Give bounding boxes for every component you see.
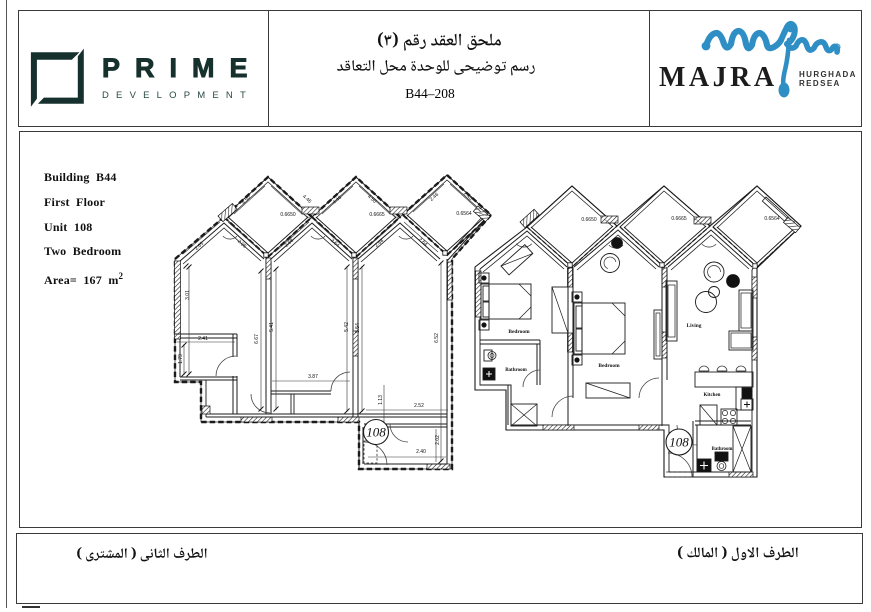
- svg-text:1.13: 1.13: [378, 395, 384, 405]
- svg-text:2.64: 2.64: [417, 237, 428, 248]
- svg-text:0.6564: 0.6564: [456, 211, 472, 217]
- svg-text:0.6650: 0.6650: [581, 217, 597, 223]
- svg-text:0.6650: 0.6650: [280, 212, 296, 218]
- svg-text:2.52: 2.52: [414, 403, 424, 409]
- svg-text:108: 108: [366, 425, 386, 440]
- svg-text:2.46: 2.46: [429, 192, 440, 203]
- svg-text:2.40: 2.40: [416, 449, 426, 455]
- svg-text:Bathroom: Bathroom: [505, 368, 527, 373]
- svg-text:2.05: 2.05: [236, 239, 247, 250]
- svg-text:Bedroom: Bedroom: [508, 329, 530, 335]
- svg-text:Kitchen: Kitchen: [704, 393, 721, 398]
- svg-text:5.42: 5.42: [344, 322, 350, 332]
- svg-text:Bedroom: Bedroom: [598, 363, 620, 369]
- svg-text:4.46: 4.46: [301, 194, 312, 205]
- svg-text:2.02: 2.02: [435, 435, 441, 445]
- svg-text:3.01: 3.01: [185, 290, 191, 300]
- svg-text:Living: Living: [687, 323, 702, 329]
- svg-text:1.79: 1.79: [178, 354, 184, 364]
- svg-text:2.41: 2.41: [198, 336, 208, 342]
- svg-text:0.6665: 0.6665: [369, 212, 385, 218]
- svg-text:6.67: 6.67: [254, 334, 260, 344]
- svg-text:5.54: 5.54: [355, 323, 361, 333]
- svg-text:5.41: 5.41: [269, 322, 275, 332]
- svg-text:0.6564: 0.6564: [764, 216, 780, 222]
- svg-text:6.52: 6.52: [434, 333, 440, 343]
- svg-text:0.6665: 0.6665: [671, 216, 687, 222]
- svg-text:3.87: 3.87: [308, 374, 318, 380]
- svg-text:108: 108: [669, 435, 689, 450]
- svg-text:2.45: 2.45: [462, 191, 473, 202]
- svg-text:4.50: 4.50: [241, 195, 252, 206]
- svg-text:Bathroom: Bathroom: [712, 447, 733, 452]
